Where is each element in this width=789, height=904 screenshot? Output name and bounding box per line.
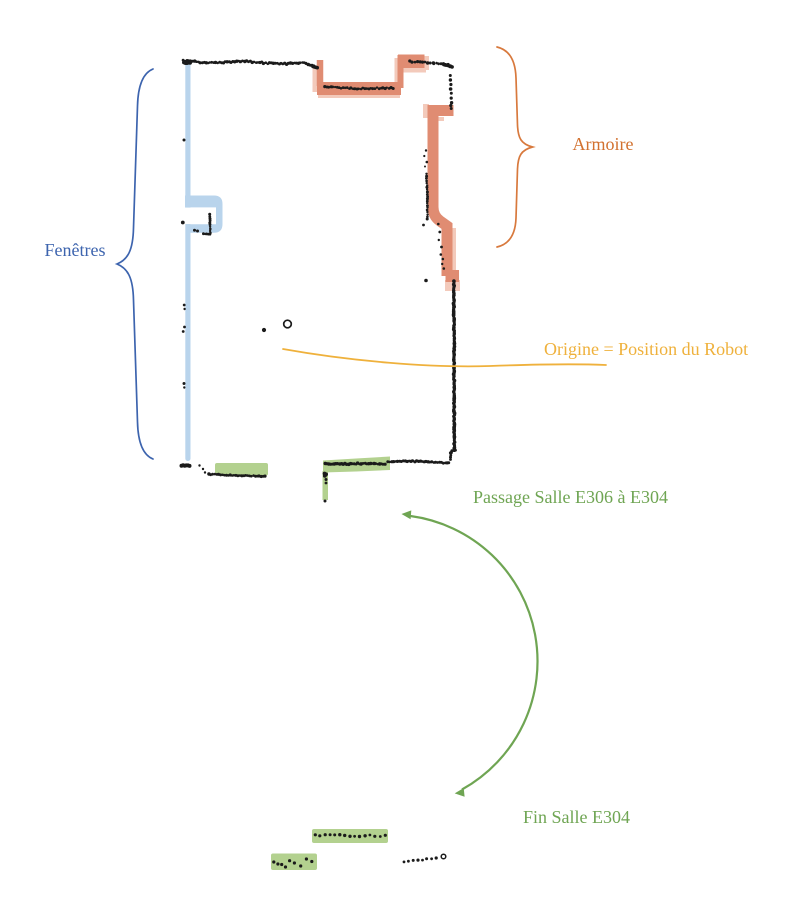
svg-text:Fenêtres: Fenêtres xyxy=(45,240,106,260)
svg-text:Fin Salle E304: Fin Salle E304 xyxy=(523,807,630,827)
svg-text:Passage Salle E306 à E304: Passage Salle E306 à E304 xyxy=(473,487,668,507)
svg-text:Armoire: Armoire xyxy=(573,134,634,154)
svg-text:Origine = Position du Robot: Origine = Position du Robot xyxy=(544,339,748,359)
